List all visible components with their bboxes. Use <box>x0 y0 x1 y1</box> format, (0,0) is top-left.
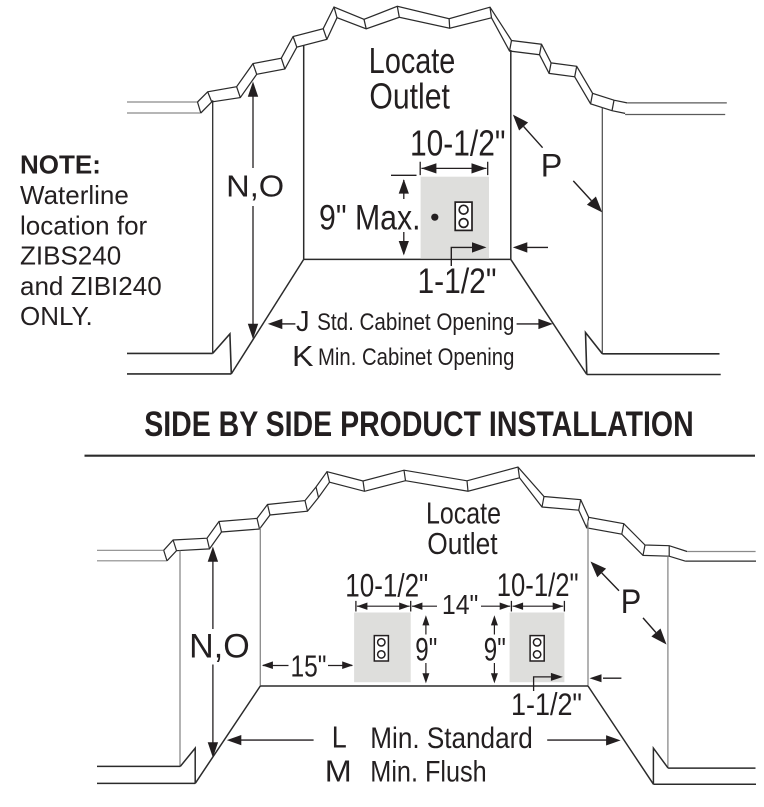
svg-text:L: L <box>332 720 347 754</box>
svg-text:K: K <box>292 341 314 373</box>
svg-text:Std. Cabinet Opening: Std. Cabinet Opening <box>317 309 514 336</box>
svg-text:10-1/2": 10-1/2" <box>410 122 506 163</box>
svg-text:Outlet: Outlet <box>427 527 498 561</box>
svg-text:15": 15" <box>291 650 327 684</box>
svg-text:9": 9" <box>415 632 437 668</box>
svg-text:P: P <box>541 147 563 184</box>
svg-text:J: J <box>296 306 310 338</box>
svg-text:location for: location for <box>20 211 148 241</box>
svg-text:9": 9" <box>484 632 506 668</box>
svg-text:P: P <box>621 583 642 621</box>
svg-text:ZIBS240: ZIBS240 <box>20 241 121 271</box>
svg-text:ONLY.: ONLY. <box>20 301 93 331</box>
svg-text:Min. Flush: Min. Flush <box>370 756 486 789</box>
svg-text:1-1/2": 1-1/2" <box>511 686 582 722</box>
svg-text:Min. Standard: Min. Standard <box>370 722 533 755</box>
svg-text:1-1/2": 1-1/2" <box>418 262 497 301</box>
svg-text:N,O: N,O <box>189 627 250 665</box>
svg-text:N,O: N,O <box>226 170 284 204</box>
svg-text:Outlet: Outlet <box>369 76 450 117</box>
svg-text:M: M <box>325 755 352 789</box>
svg-text:10-1/2": 10-1/2" <box>497 567 579 603</box>
svg-text:Waterline: Waterline <box>20 180 129 210</box>
svg-text:and ZIBI240: and ZIBI240 <box>20 271 162 301</box>
svg-text:9" Max.: 9" Max. <box>319 197 421 237</box>
svg-text:Locate: Locate <box>426 497 501 531</box>
svg-text:14": 14" <box>442 589 479 620</box>
svg-text:Min. Cabinet Opening: Min. Cabinet Opening <box>318 344 514 371</box>
svg-text:NOTE:: NOTE: <box>20 150 101 180</box>
svg-text:SIDE BY SIDE PRODUCT INSTALLAT: SIDE BY SIDE PRODUCT INSTALLATION <box>144 405 694 444</box>
svg-text:10-1/2": 10-1/2" <box>345 567 428 603</box>
